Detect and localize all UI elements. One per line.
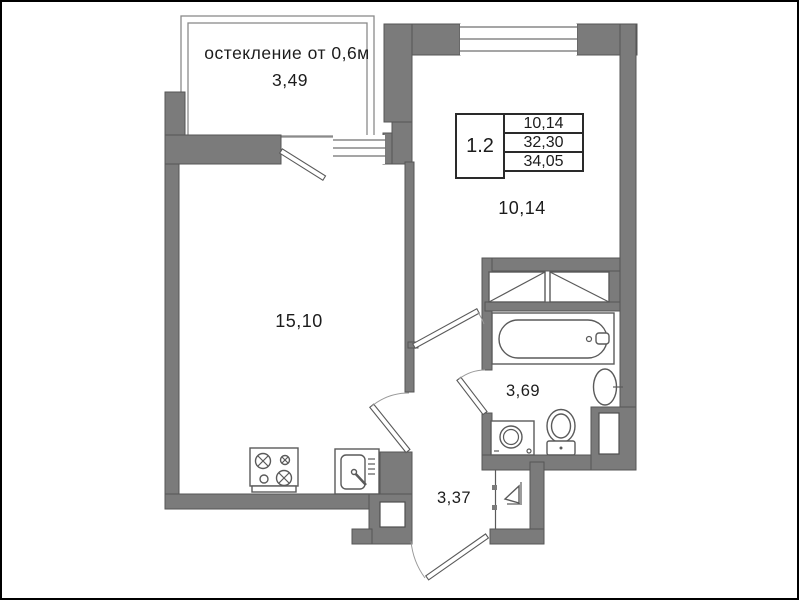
unit-living-area: 10,14: [503, 113, 584, 134]
unit-full-area: 34,05: [503, 151, 584, 172]
wall-bedroom-left-upper: [392, 120, 412, 164]
wall-bedroom-bath: [482, 258, 620, 271]
kitchen-door-icon: [370, 393, 410, 453]
floor-plan: остекление от 0,6м 3,49 15,10 10,14 3,69…: [0, 0, 799, 600]
wall-entry-stub: [352, 529, 372, 544]
bedroom-area-label: 10,14: [472, 198, 572, 219]
unit-total-area: 32,30: [503, 132, 584, 153]
kitchen-sink-icon: [335, 449, 379, 494]
balcony-glazing-note: остекление от 0,6м: [180, 43, 394, 64]
hall-area-label: 3,37: [414, 489, 494, 508]
entrance-door-icon: [411, 534, 488, 580]
wall-hall-block: [380, 452, 412, 494]
floor-plan-drawing: [2, 2, 797, 598]
balcony-area-label: 3,49: [240, 70, 340, 91]
bathroom-area-label: 3,69: [483, 382, 563, 401]
wall-bedroom-top-left: [412, 24, 460, 55]
unit-info-table: 1.2 10,14 32,30 34,05: [455, 113, 584, 179]
wall-left-head: [165, 92, 185, 135]
stove-icon: [250, 448, 298, 492]
washbasin-icon: [594, 369, 624, 405]
wall-living-top: [165, 135, 281, 164]
wall-niche-bottom: [490, 529, 544, 544]
wall-living-bottom: [165, 494, 369, 509]
ventilation-shaft-hall-icon: [380, 502, 405, 527]
window-bedroom-icon: [460, 24, 577, 55]
toilet-icon: [547, 410, 575, 456]
bathtub-icon: [492, 313, 614, 364]
balcony-door-icon: [280, 149, 326, 180]
unit-values: 10,14 32,30 34,05: [503, 113, 584, 179]
wardrobe-icon: [489, 272, 609, 302]
living-room-area-label: 15,10: [249, 311, 349, 332]
ventilation-shaft-bathroom-icon: [599, 413, 619, 454]
wall-right: [620, 24, 636, 458]
wall-wardrobe-bath: [485, 302, 620, 311]
window-balcony-icon: [333, 135, 386, 164]
unit-number: 1.2: [455, 113, 505, 179]
wall-balcony-bedroom: [384, 24, 412, 122]
wall-wardrobe-filler: [609, 271, 620, 302]
entrance-arrow-icon: [505, 482, 521, 505]
wall-living-right: [405, 162, 414, 392]
washing-machine-icon: [491, 421, 534, 455]
bedroom-door-icon: [413, 309, 484, 348]
